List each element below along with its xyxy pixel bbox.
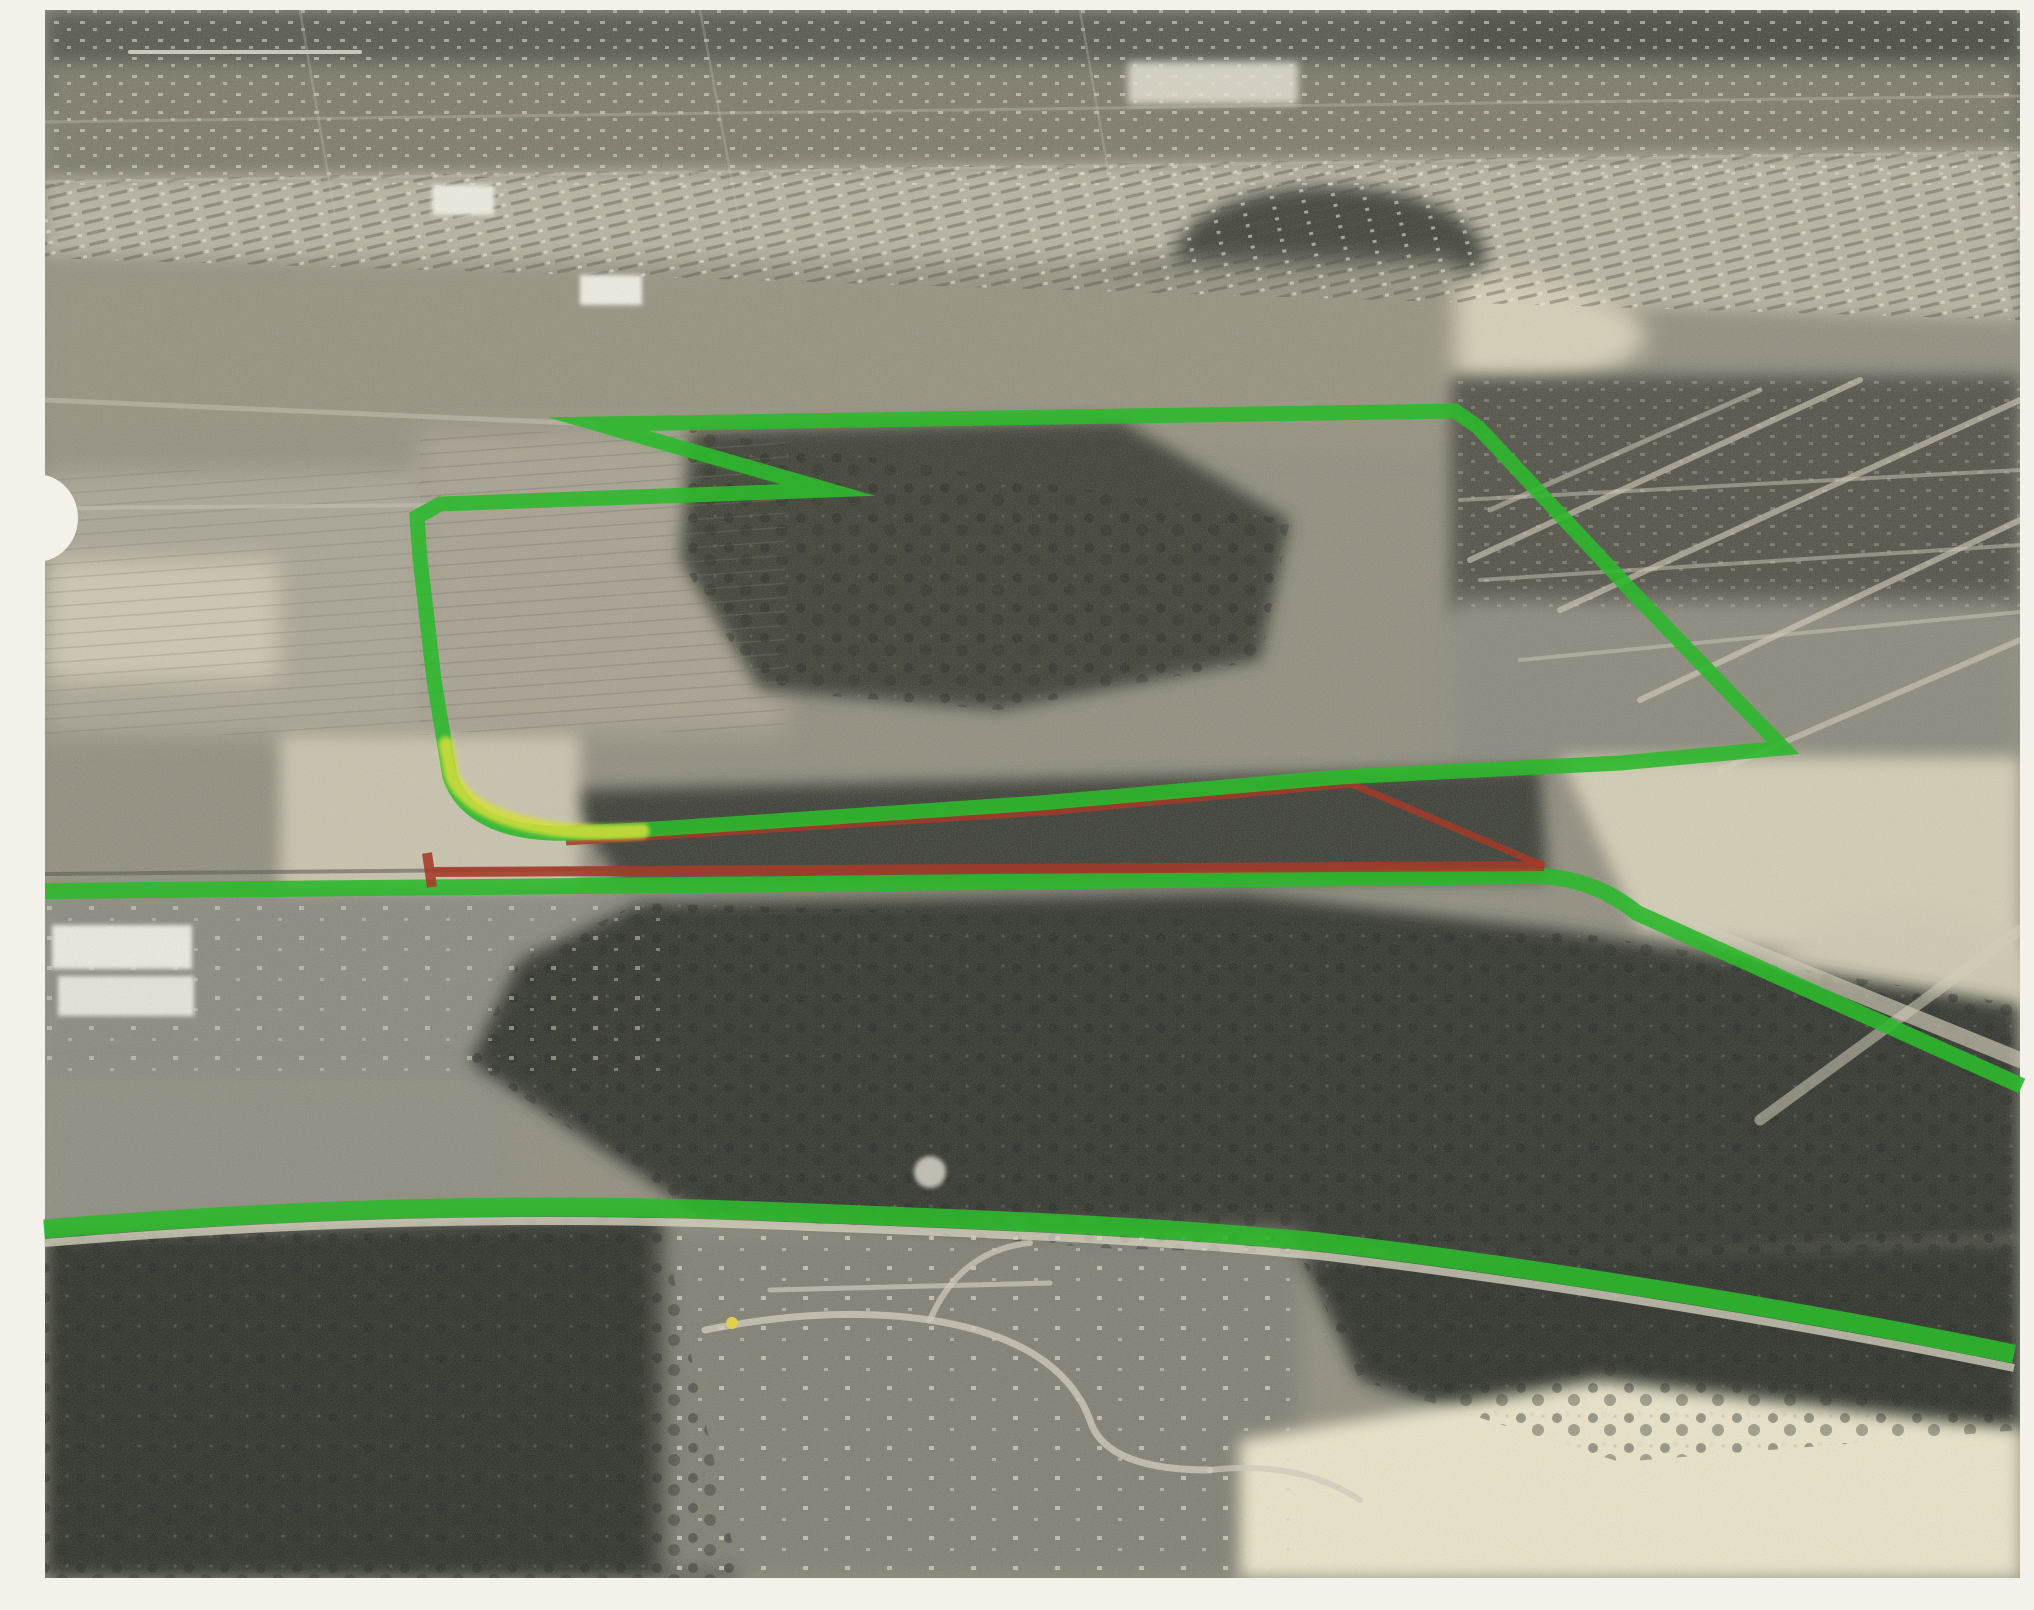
aerial-photo-canvas: Scanned black-and-white oblique aerial p… bbox=[0, 0, 2034, 1610]
photo-margin-left bbox=[0, 0, 45, 1610]
film-grain-overlay bbox=[45, 10, 2020, 1578]
scanned-aerial-photo-page: Scanned black-and-white oblique aerial p… bbox=[0, 0, 2034, 1610]
photo-margin-bottom bbox=[0, 1578, 2034, 1610]
photo-margin-top bbox=[0, 0, 2034, 10]
photo-margin-right bbox=[2020, 0, 2034, 1610]
